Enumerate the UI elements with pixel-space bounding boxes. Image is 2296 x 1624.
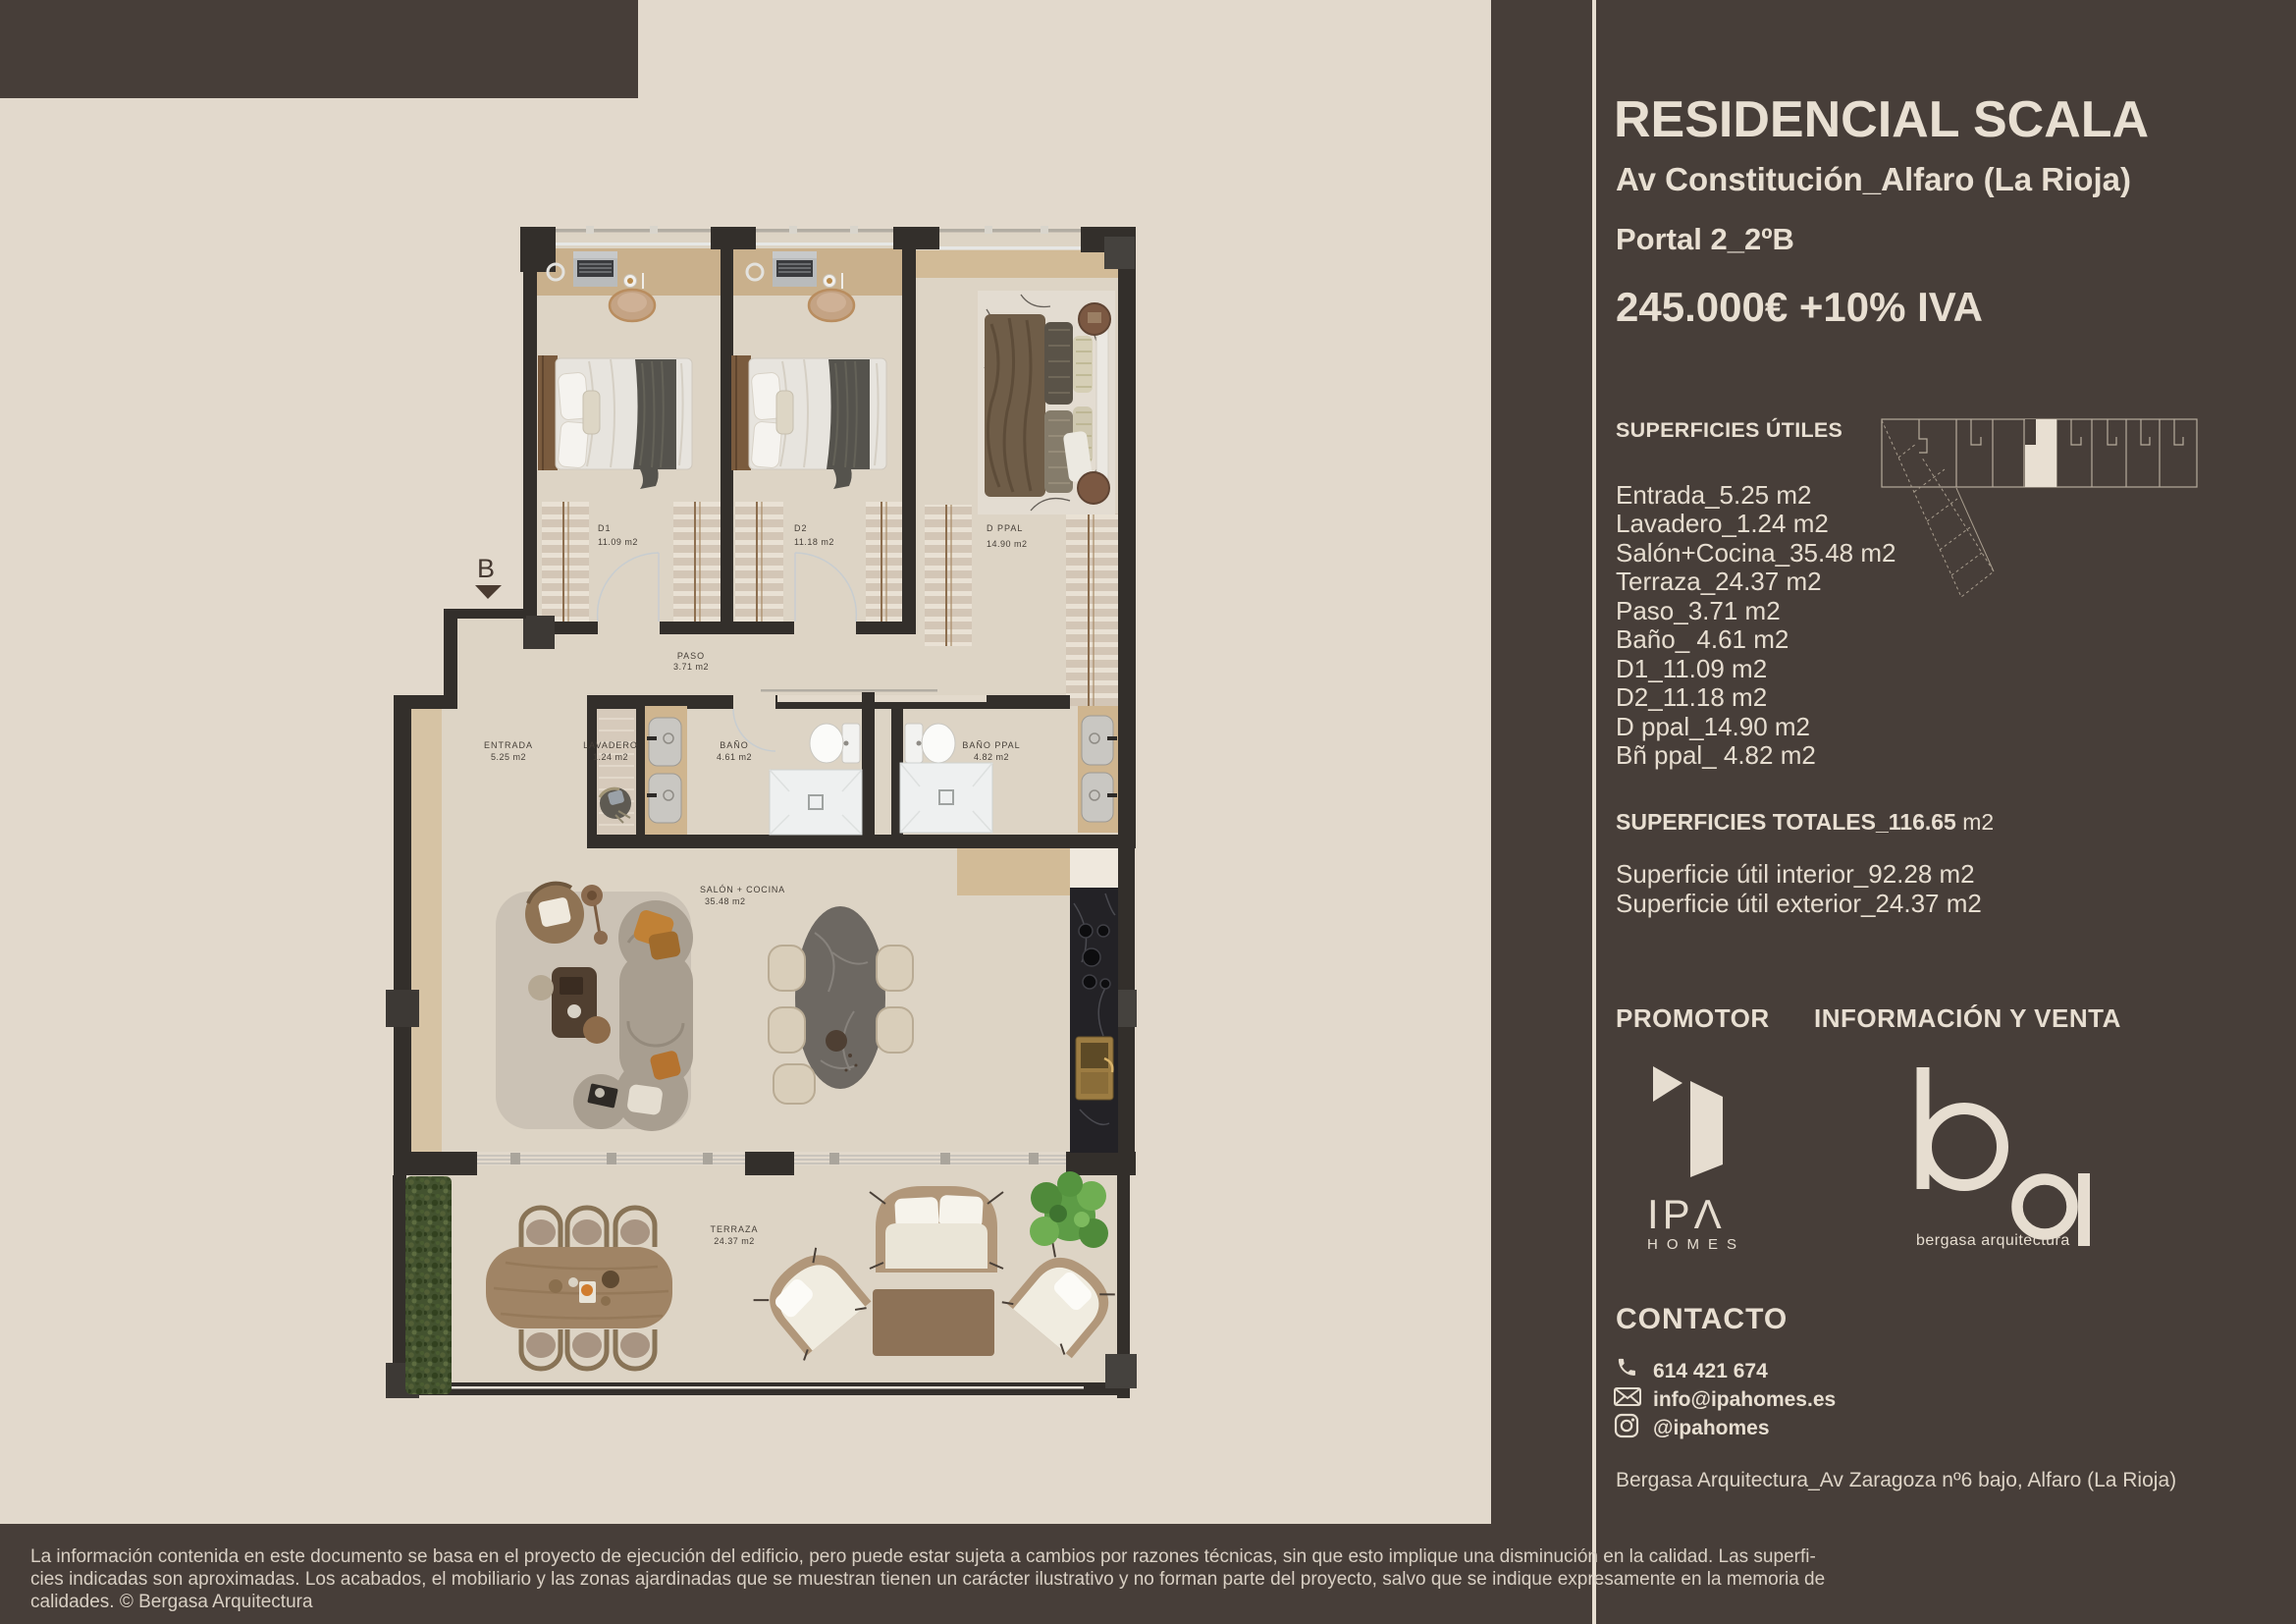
svg-text:PASO: PASO xyxy=(677,651,705,661)
svg-text:RESIDENCIAL SCALA: RESIDENCIAL SCALA xyxy=(1614,91,2149,148)
svg-text:TERRAZA: TERRAZA xyxy=(710,1224,758,1234)
svg-text:1.24 m2: 1.24 m2 xyxy=(593,752,628,762)
svg-text:4.61 m2: 4.61 m2 xyxy=(717,752,752,762)
svg-text:cies indicadas son aproximadas: cies indicadas son aproximadas. Los acab… xyxy=(30,1569,1825,1590)
svg-text:IPΛ: IPΛ xyxy=(1647,1191,1726,1237)
svg-text:Entrada_5.25 m2: Entrada_5.25 m2 xyxy=(1616,480,1811,510)
svg-text:La información contenida en es: La información contenida en este documen… xyxy=(30,1546,1816,1567)
svg-text:Bñ ppal_ 4.82 m2: Bñ ppal_ 4.82 m2 xyxy=(1616,740,1816,770)
svg-text:INFORMACIÓN Y VENTA: INFORMACIÓN Y VENTA xyxy=(1814,1003,2121,1033)
svg-text:Paso_3.71 m2: Paso_3.71 m2 xyxy=(1616,596,1781,625)
svg-text:HOMES: HOMES xyxy=(1647,1236,1745,1253)
svg-text:D1: D1 xyxy=(598,523,612,533)
svg-text:D2: D2 xyxy=(794,523,808,533)
svg-text:bergasa arquitectura: bergasa arquitectura xyxy=(1916,1232,2070,1249)
svg-text:24.37 m2: 24.37 m2 xyxy=(714,1236,755,1246)
svg-text:BAÑO: BAÑO xyxy=(720,740,749,750)
svg-text:4.82 m2: 4.82 m2 xyxy=(974,752,1009,762)
svg-text:35.48 m2: 35.48 m2 xyxy=(705,896,746,906)
svg-text:SUPERFICIES ÚTILES: SUPERFICIES ÚTILES xyxy=(1616,417,1842,442)
svg-text:PROMOTOR: PROMOTOR xyxy=(1616,1003,1770,1033)
svg-text:Av Constitución_Alfaro (La Rio: Av Constitución_Alfaro (La Rioja) xyxy=(1616,161,2131,197)
svg-text:Portal 2_2ºB: Portal 2_2ºB xyxy=(1616,222,1794,256)
svg-text:SALÓN + COCINA: SALÓN + COCINA xyxy=(700,885,785,894)
svg-text:5.25 m2: 5.25 m2 xyxy=(491,752,526,762)
svg-text:calidades. © Bergasa Arquitec: calidades. © Bergasa Arquitectura xyxy=(30,1592,313,1612)
svg-text:3.71 m2: 3.71 m2 xyxy=(673,662,709,672)
svg-text:11.09 m2: 11.09 m2 xyxy=(598,537,638,547)
svg-text:SUPERFICIES TOTALES_116.65 m2: SUPERFICIES TOTALES_116.65 m2 xyxy=(1616,809,1994,835)
svg-text:Lavadero_1.24 m2: Lavadero_1.24 m2 xyxy=(1616,509,1829,538)
svg-text:LAVADERO: LAVADERO xyxy=(583,740,638,750)
svg-text:BAÑO PPAL: BAÑO PPAL xyxy=(962,740,1020,750)
svg-text:B: B xyxy=(477,554,495,583)
svg-text:CONTACTO: CONTACTO xyxy=(1616,1303,1788,1335)
svg-text:@ipahomes: @ipahomes xyxy=(1653,1417,1770,1439)
svg-text:Superficie útil interior_92.28: Superficie útil interior_92.28 m2 xyxy=(1616,859,1975,889)
svg-text:Salón+Cocina_35.48 m2: Salón+Cocina_35.48 m2 xyxy=(1616,538,1896,568)
svg-text:Baño_ 4.61 m2: Baño_ 4.61 m2 xyxy=(1616,624,1789,654)
svg-text:245.000€ +10% IVA: 245.000€ +10% IVA xyxy=(1616,284,1983,330)
svg-text:D ppal_14.90 m2: D ppal_14.90 m2 xyxy=(1616,712,1810,741)
svg-text:Bergasa Arquitectura_Av Zarago: Bergasa Arquitectura_Av Zaragoza nº6 baj… xyxy=(1616,1469,2176,1491)
svg-text:ENTRADA: ENTRADA xyxy=(484,740,533,750)
svg-text:14.90 m2: 14.90 m2 xyxy=(987,539,1028,549)
svg-text:614 421 674: 614 421 674 xyxy=(1653,1360,1768,1382)
svg-text:D PPAL: D PPAL xyxy=(987,523,1023,533)
svg-text:Superficie útil exterior_24.37: Superficie útil exterior_24.37 m2 xyxy=(1616,889,1982,918)
svg-text:info@ipahomes.es: info@ipahomes.es xyxy=(1653,1388,1836,1411)
svg-text:11.18 m2: 11.18 m2 xyxy=(794,537,834,547)
svg-text:D2_11.18 m2: D2_11.18 m2 xyxy=(1616,682,1767,712)
svg-text:D1_11.09 m2: D1_11.09 m2 xyxy=(1616,654,1767,683)
svg-text:Terraza_24.37 m2: Terraza_24.37 m2 xyxy=(1616,567,1822,596)
